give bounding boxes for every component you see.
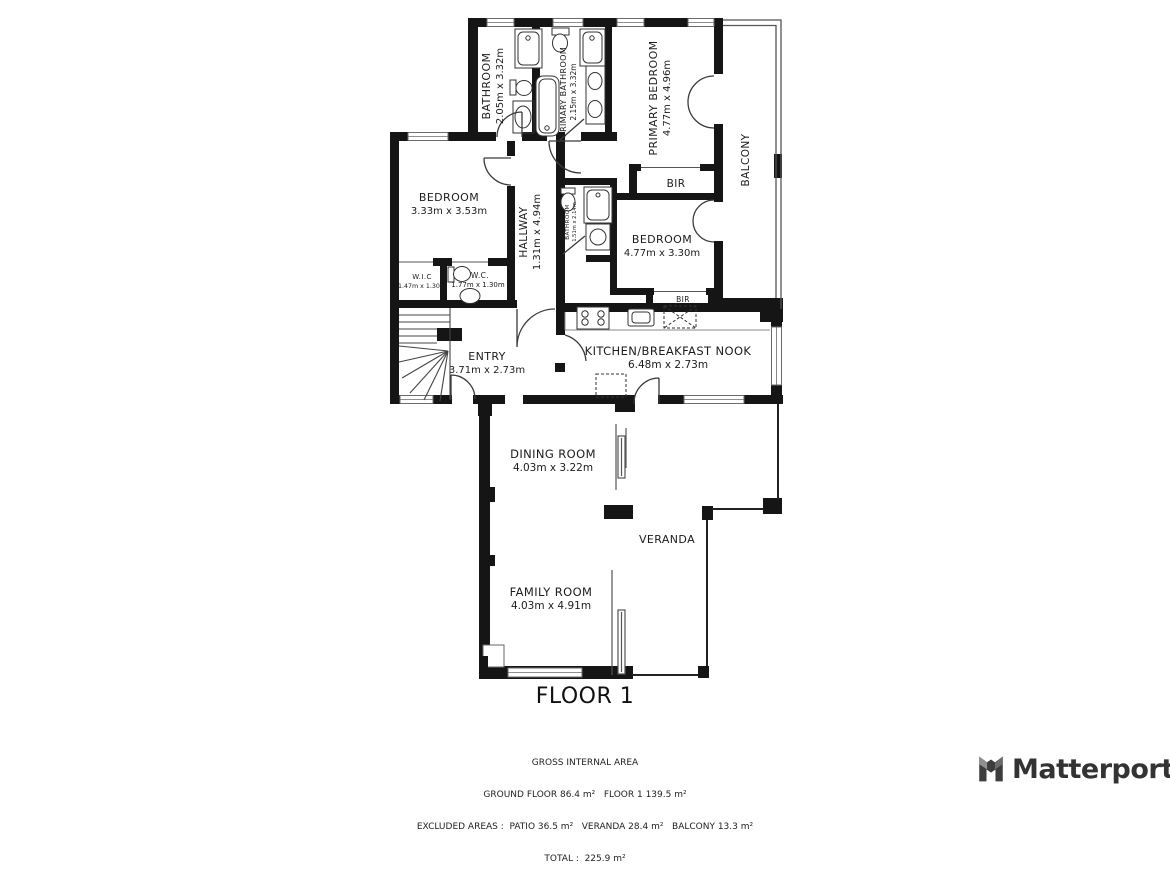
room-dims-family: 4.03m x 4.91m — [511, 600, 591, 612]
room-label-kitchen: KITCHEN/BREAKFAST NOOK — [585, 344, 752, 358]
room-label-balcony: BALCONY — [740, 133, 752, 186]
room-label-hallway: HALLWAY — [518, 206, 530, 257]
room-label-bir-top: BIR — [667, 178, 686, 190]
floor-plan-svg: BATHROOM 2.05m x 3.32m PRIMARY BATHROOM … — [0, 0, 1170, 785]
room-dims-bathroom: 2.05m x 3.32m — [495, 48, 506, 124]
chimney-notch-wall — [479, 656, 488, 668]
room-label-bedroom2: BEDROOM — [632, 233, 692, 246]
room-label-primary-bathroom: PRIMARY BATHROOM — [559, 47, 568, 137]
room-dims-dining: 4.03m x 3.22m — [513, 462, 593, 474]
room-label-entry: ENTRY — [468, 350, 506, 363]
room-dims-primary-bathroom: 2.15m x 3.32m — [569, 63, 578, 120]
room-dims-wc: 1.77m x 1.30m — [451, 281, 505, 289]
excluded-areas-line: EXCLUDED AREAS : PATIO 36.5 m² VERANDA 2… — [285, 822, 885, 833]
room-dims-primary-bedroom: 4.77m x 4.96m — [662, 60, 673, 136]
gross-internal-area-label: GROSS INTERNAL AREA — [285, 758, 885, 769]
matterport-wordmark: Matterport — [1012, 755, 1170, 785]
balcony-rail — [723, 20, 781, 309]
room-dims-bedroom2: 4.77m x 3.30m — [624, 248, 700, 259]
matterport-brand: Matterport — [977, 755, 1170, 785]
floor-areas-line: GROUND FLOOR 86.4 m² FLOOR 1 139.5 m² — [285, 790, 885, 801]
toilet-icon — [510, 80, 516, 95]
room-dims-bedroom1: 3.33m x 3.53m — [411, 206, 487, 217]
room-label-wic: W.I.C — [412, 273, 432, 281]
room-dims-wic: 1.47m x 1.30m — [398, 283, 446, 290]
room-dims-kitchen: 6.48m x 2.73m — [628, 359, 708, 371]
room-label-wc: W.C. — [471, 271, 489, 280]
room-label-bathroom2: BATHROOM — [565, 204, 571, 240]
vanity-icon — [515, 29, 542, 68]
room-label-bedroom1: BEDROOM — [419, 191, 479, 204]
room-dims-entry: 3.71m x 2.73m — [449, 365, 525, 376]
staircase — [399, 308, 450, 401]
room-label-dining: DINING ROOM — [510, 447, 596, 461]
room-label-family: FAMILY ROOM — [510, 585, 593, 599]
sink-icon — [460, 289, 480, 304]
room-label-bir-bottom: BIR — [676, 295, 690, 304]
stove-icon — [577, 307, 609, 329]
sliding-doors — [612, 424, 626, 675]
floor-plan: BATHROOM 2.05m x 3.32m PRIMARY BATHROOM … — [0, 0, 1170, 785]
matterport-logo-icon — [977, 755, 1005, 783]
room-dims-bathroom2: 1.51m x 2.14m — [572, 202, 578, 242]
room-label-primary-bedroom: PRIMARY BEDROOM — [647, 40, 660, 155]
floor-title: FLOOR 1 — [460, 684, 710, 709]
room-label-bathroom: BATHROOM — [480, 53, 493, 120]
island-icon — [596, 374, 626, 397]
room-dims-hallway: 1.31m x 4.94m — [532, 194, 543, 270]
area-summary: GROSS INTERNAL AREA GROUND FLOOR 86.4 m²… — [285, 737, 885, 875]
room-label-veranda: VERANDA — [639, 533, 695, 546]
total-area-line: TOTAL : 225.9 m² — [285, 854, 885, 865]
